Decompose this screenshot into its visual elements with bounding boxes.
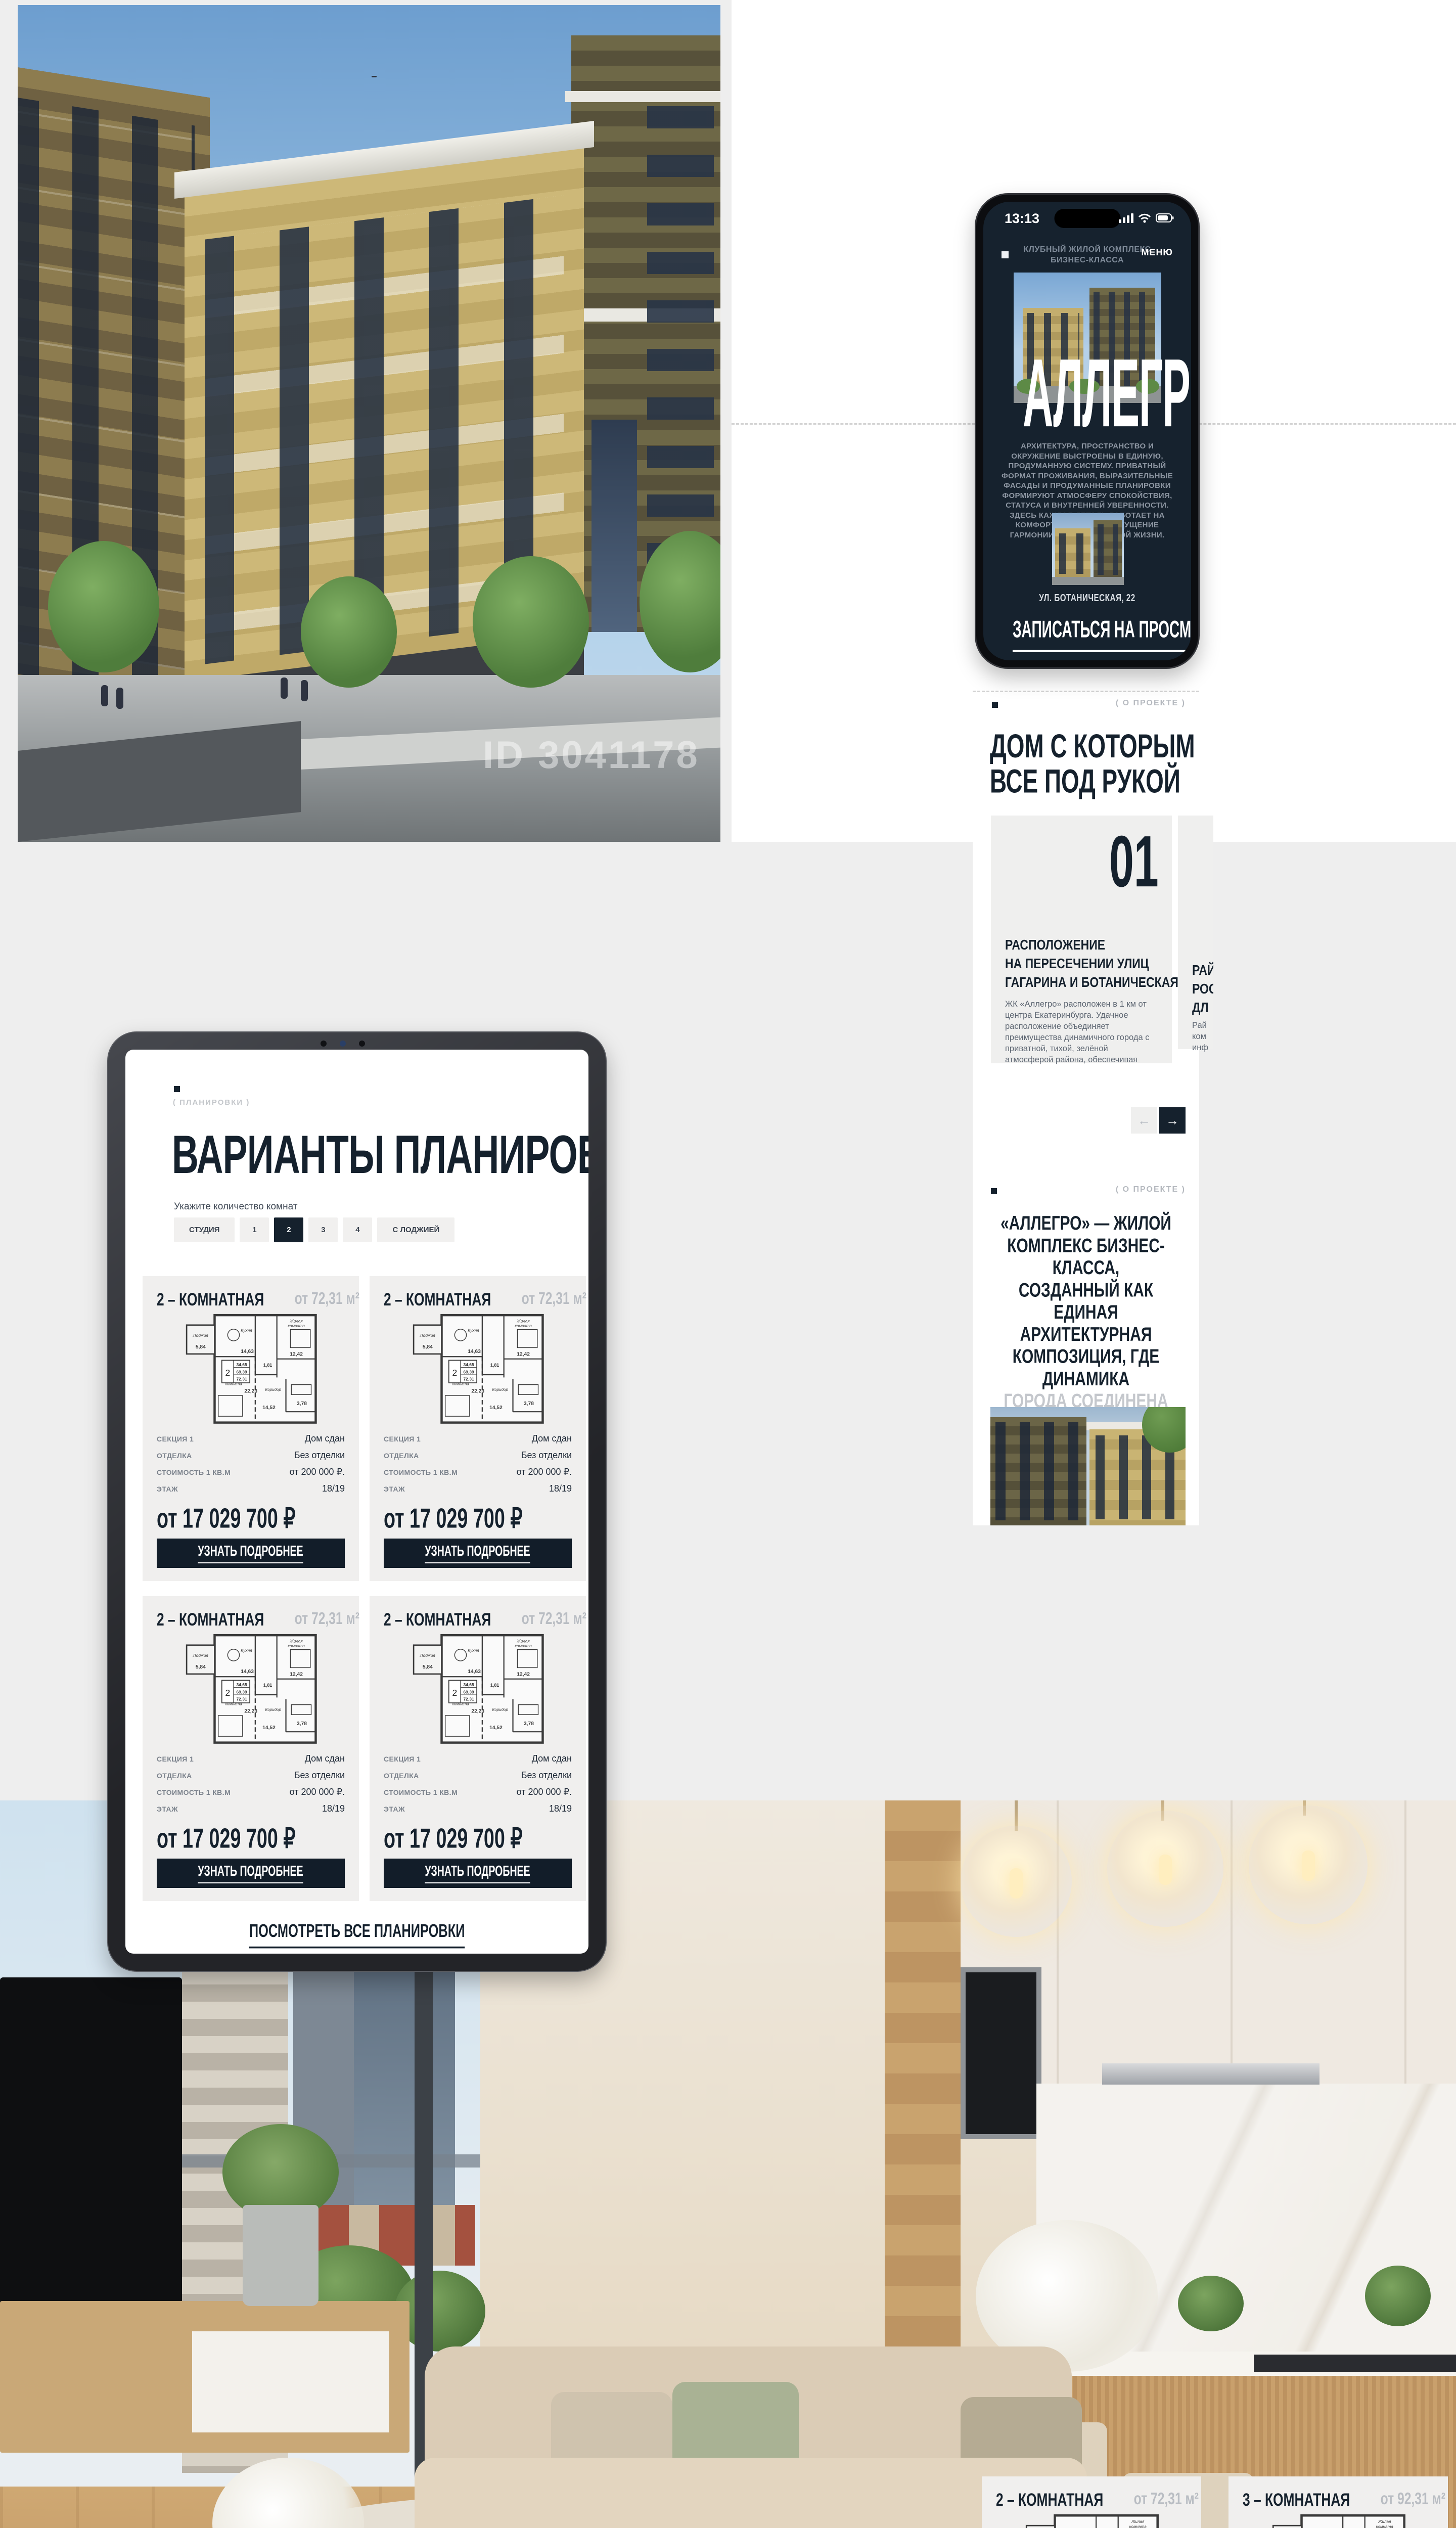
- svg-text:Кухня: Кухня: [468, 1328, 479, 1333]
- svg-text:72,31: 72,31: [237, 1697, 247, 1702]
- dashed-divider: [973, 691, 1199, 692]
- svg-text:комната: комната: [515, 1644, 532, 1648]
- learn-more-button[interactable]: УЗНАТЬ ПОДРОБНЕЕ: [384, 1539, 572, 1568]
- svg-text:комната: комната: [288, 1324, 305, 1328]
- svg-text:12,42: 12,42: [290, 1672, 303, 1677]
- svg-text:14,52: 14,52: [489, 1725, 503, 1731]
- apartment-specs: СЕКЦИЯ 1Дом сданОТДЕЛКАБез отделкиСТОИМО…: [384, 1430, 572, 1497]
- svg-text:5,84: 5,84: [423, 1344, 433, 1350]
- svg-text:22,23: 22,23: [244, 1389, 257, 1394]
- apartment-specs: СЕКЦИЯ 1Дом сданОТДЕЛКАБез отделкиСТОИМО…: [384, 1750, 572, 1817]
- plans-grid: 2 – КОМНАТНАЯ от 72,31 м² Лоджия 5,84 Ку…: [143, 1276, 586, 1901]
- apartment-title: 2 – КОМНАТНАЯ: [996, 2490, 1103, 2510]
- status-icons: [1119, 213, 1174, 223]
- apartment-price: от 17 029 700 ₽: [157, 1502, 311, 1534]
- spec-row: ЭТАЖ18/19: [157, 1480, 345, 1497]
- phone-screen: 13:13 КЛУБНЫЙ ЖИЛОЙ КОМПЛЕКСБИЗНЕС-КЛАСС…: [983, 202, 1191, 660]
- carousel-next-button[interactable]: →: [1159, 1107, 1186, 1134]
- feature-title: РАСПОЛОЖЕНИЕНА ПЕРЕСЕЧЕНИИ УЛИЦГАГАРИНА …: [1005, 936, 1178, 992]
- apartment-specs: СЕКЦИЯ 1Дом сданОТДЕЛКАБез отделкиСТОИМО…: [157, 1430, 345, 1497]
- menu-button[interactable]: МЕНЮ: [1141, 247, 1173, 258]
- apartment-area: от 72,31 м²: [294, 1609, 359, 1629]
- see-all-plans-link[interactable]: ПОСМОТРЕТЬ ВСЕ ПЛАНИРОВКИ: [125, 1920, 588, 1944]
- pedestrian: [101, 685, 108, 706]
- svg-text:14,52: 14,52: [262, 1405, 276, 1411]
- filter-с лоджией[interactable]: С ЛОДЖИЕЙ: [377, 1217, 454, 1242]
- apartment-title: 2 – КОМНАТНАЯ: [384, 1289, 491, 1310]
- plant: [1365, 2266, 1431, 2326]
- spec-row: ОТДЕЛКАБез отделки: [384, 1767, 572, 1784]
- svg-text:3,78: 3,78: [297, 1721, 307, 1727]
- apartment-title: 3 – КОМНАТНАЯ: [1243, 2490, 1350, 2510]
- svg-text:2: 2: [225, 1368, 230, 1378]
- tree: [301, 576, 397, 688]
- svg-text:Лоджия: Лоджия: [193, 1653, 209, 1658]
- floor-plan-image: Лоджия 5,84 Кухня 14,63 Жилая комната 12…: [996, 2508, 1187, 2528]
- features-carousel[interactable]: 01 РАСПОЛОЖЕНИЕНА ПЕРЕСЕЧЕНИИ УЛИЦГАГАРИ…: [973, 816, 1213, 1064]
- manifest-dark-lines: «АЛЛЕГРО» — ЖИЛОЙКОМПЛЕКС БИЗНЕС-КЛАССА,…: [986, 1212, 1186, 1390]
- floor-plan-image: Лоджия 5,84 Кухня 14,63 Жилая комната 12…: [384, 1628, 572, 1749]
- svg-text:Лоджия: Лоджия: [420, 1333, 436, 1338]
- apartment-card: 2 – КОМНАТНАЯ от 72,31 м² Лоджия 5,84 Ку…: [143, 1276, 359, 1581]
- spec-row: СТОИМОСТЬ 1 КВ.Мот 200 000 ₽.: [384, 1784, 572, 1800]
- apartment-card: 3 – КОМНАТНАЯ от 92,31 м² Лоджия 5,84 Ку…: [1228, 2476, 1448, 2528]
- svg-text:22,23: 22,23: [244, 1709, 257, 1714]
- svg-text:Жилая: Жилая: [290, 1639, 303, 1643]
- feature-title: РАЙРОСДЛ: [1192, 961, 1213, 1017]
- svg-text:5,84: 5,84: [196, 1344, 206, 1350]
- feature-card-01: 01 РАСПОЛОЖЕНИЕНА ПЕРЕСЕЧЕНИИ УЛИЦГАГАРИ…: [991, 816, 1172, 1063]
- svg-text:1,81: 1,81: [490, 1683, 499, 1688]
- svg-text:69,39: 69,39: [237, 1689, 247, 1694]
- plant-pot: [243, 2205, 318, 2306]
- spec-row: СТОИМОСТЬ 1 КВ.Мот 200 000 ₽.: [157, 1784, 345, 1800]
- range-hood: [1102, 2063, 1319, 2085]
- pedestrian: [301, 680, 308, 701]
- spec-row: ОТДЕЛКАБез отделки: [384, 1447, 572, 1464]
- svg-text:14,63: 14,63: [241, 1349, 254, 1355]
- logo-square: [1002, 251, 1009, 258]
- building-render-photo: ID 3041178: [18, 5, 720, 842]
- tablet-mockup: ( ПЛАНИРОВКИ ) ВАРИАНТЫ ПЛАНИРОВОК Укажи…: [107, 1031, 607, 1972]
- svg-text:Жилая: Жилая: [1378, 2519, 1391, 2524]
- about-heading: ДОМ С КОТОРЫМВСЕ ПОД РУКОЙ: [990, 728, 1195, 798]
- apartment-area: от 72,31 м²: [521, 1289, 586, 1308]
- svg-text:22,23: 22,23: [471, 1389, 484, 1394]
- phone-mockup: 13:13 КЛУБНЫЙ ЖИЛОЙ КОМПЛЕКСБИЗНЕС-КЛАСС…: [975, 193, 1200, 669]
- svg-text:2: 2: [225, 1688, 230, 1698]
- apartment-area: от 92,31 м²: [1380, 2490, 1445, 2509]
- svg-text:5,84: 5,84: [423, 1664, 433, 1670]
- svg-text:Кухня: Кухня: [468, 1648, 479, 1653]
- svg-text:Лоджия: Лоджия: [420, 1653, 436, 1658]
- address-label: УЛ. БОТАНИЧЕСКАЯ, 22: [994, 592, 1181, 604]
- facade-photo: [990, 1407, 1186, 1525]
- apartment-title: 2 – КОМНАТНАЯ: [157, 1609, 264, 1630]
- section-label-about2: ( О ПРОЕКТЕ ): [973, 1185, 1186, 1194]
- svg-text:2: 2: [452, 1688, 457, 1698]
- svg-text:1,81: 1,81: [263, 1363, 272, 1368]
- learn-more-button[interactable]: УЗНАТЬ ПОДРОБНЕЕ: [157, 1539, 345, 1568]
- learn-more-button[interactable]: УЗНАТЬ ПОДРОБНЕЕ: [384, 1859, 572, 1888]
- feature-body: ЖК «Аллегро» расположен в 1 км от центра…: [1005, 999, 1158, 1064]
- floor-plan-image: Лоджия 5,84 Кухня 14,63 Жилая комната 12…: [1243, 2508, 1434, 2528]
- apartment-card: 2 – КОМНАТНАЯ от 72,31 м² Лоджия 5,84 Ку…: [143, 1596, 359, 1901]
- svg-text:14,63: 14,63: [241, 1669, 254, 1675]
- apartment-area: от 72,31 м²: [1133, 2490, 1198, 2509]
- tv-console: [0, 2301, 409, 2453]
- svg-text:Жилая: Жилая: [517, 1639, 530, 1643]
- pendant-lamp: [1249, 1805, 1368, 1924]
- svg-text:Жилая: Жилая: [1131, 2519, 1145, 2524]
- svg-text:Коридор: Коридор: [265, 1707, 282, 1712]
- spec-row: СЕКЦИЯ 1Дом сдан: [157, 1750, 345, 1767]
- apartment-price: от 17 029 700 ₽: [157, 1822, 311, 1855]
- svg-text:69,39: 69,39: [464, 1369, 474, 1374]
- svg-text:3,78: 3,78: [524, 1401, 534, 1407]
- spec-row: ОТДЕЛКАБез отделки: [157, 1447, 345, 1464]
- svg-text:5,84: 5,84: [196, 1664, 206, 1670]
- spec-row: СЕКЦИЯ 1Дом сдан: [384, 1430, 572, 1447]
- spec-row: ОТДЕЛКАБез отделки: [157, 1767, 345, 1784]
- spec-row: СТОИМОСТЬ 1 КВ.Мот 200 000 ₽.: [384, 1464, 572, 1480]
- filter-3[interactable]: 3: [308, 1217, 338, 1242]
- svg-text:12,42: 12,42: [517, 1351, 530, 1357]
- svg-text:Жилая: Жилая: [517, 1319, 530, 1323]
- svg-text:Коридор: Коридор: [492, 1707, 509, 1712]
- spec-row: ЭТАЖ18/19: [384, 1800, 572, 1817]
- book-viewing-button[interactable]: ЗАПИСАТЬСЯ НА ПРОСМОТР: [983, 615, 1191, 643]
- svg-text:Лоджия: Лоджия: [193, 1333, 209, 1338]
- svg-text:3,78: 3,78: [524, 1721, 534, 1727]
- svg-text:14,63: 14,63: [468, 1349, 481, 1355]
- spec-row: СЕКЦИЯ 1Дом сдан: [157, 1430, 345, 1447]
- svg-text:комната: комната: [1376, 2524, 1394, 2528]
- svg-text:34,65: 34,65: [237, 1682, 247, 1687]
- svg-text:14,52: 14,52: [489, 1405, 503, 1411]
- apartment-price: от 17 029 700 ₽: [384, 1502, 538, 1534]
- stock-watermark: ID 3041178: [483, 733, 700, 777]
- project-title: АЛЛЕГРО: [1023, 337, 1152, 448]
- spec-row: СТОИМОСТЬ 1 КВ.Мот 200 000 ₽.: [157, 1464, 345, 1480]
- pedestrian: [116, 688, 123, 709]
- signal-icon: [1119, 213, 1133, 223]
- bottom-plan-cards: 2 – КОМНАТНАЯ от 72,31 м² Лоджия 5,84 Ку…: [982, 2476, 1448, 2528]
- svg-text:34,65: 34,65: [464, 1362, 474, 1367]
- filter-1[interactable]: 1: [240, 1217, 269, 1242]
- floor-plan-image: Лоджия 5,84 Кухня 14,63 Жилая комната 12…: [157, 1307, 345, 1429]
- floor-plan-image: Лоджия 5,84 Кухня 14,63 Жилая комната 12…: [384, 1307, 572, 1429]
- apartment-title: 2 – КОМНАТНАЯ: [157, 1289, 264, 1310]
- svg-text:1,81: 1,81: [263, 1683, 272, 1688]
- svg-text:14,63: 14,63: [468, 1669, 481, 1675]
- feature-card-02-partial: РАЙРОСДЛ Райкоминф: [1178, 816, 1213, 1049]
- filter-caption: Укажите количество комнат: [174, 1201, 297, 1212]
- carousel-prev-button[interactable]: ←: [1131, 1107, 1157, 1134]
- apartment-area: от 72,31 м²: [521, 1609, 586, 1629]
- tv: [0, 1977, 182, 2311]
- svg-text:3,78: 3,78: [297, 1401, 307, 1407]
- apartment-title: 2 – КОМНАТНАЯ: [384, 1609, 491, 1630]
- section-square-marker: [174, 1086, 180, 1092]
- svg-text:34,65: 34,65: [237, 1362, 247, 1367]
- dynamic-island: [1054, 209, 1120, 228]
- svg-text:комната: комната: [1129, 2524, 1147, 2528]
- plant: [1178, 2276, 1244, 2331]
- tree: [473, 556, 589, 688]
- room-filter-group: СТУДИЯ1234С ЛОДЖИЕЙ: [174, 1217, 454, 1242]
- wifi-icon: [1138, 213, 1151, 223]
- svg-text:комната: комната: [515, 1324, 532, 1328]
- filter-2[interactable]: 2: [274, 1217, 303, 1242]
- svg-text:72,31: 72,31: [464, 1377, 474, 1382]
- tablet-screen: ( ПЛАНИРОВКИ ) ВАРИАНТЫ ПЛАНИРОВОК Укажи…: [125, 1050, 588, 1954]
- svg-text:1,81: 1,81: [490, 1363, 499, 1368]
- apartment-specs: СЕКЦИЯ 1Дом сданОТДЕЛКАБез отделкиСТОИМО…: [157, 1750, 345, 1817]
- svg-text:Кухня: Кухня: [241, 1648, 252, 1653]
- section-label-about: ( О ПРОЕКТЕ ): [973, 699, 1186, 708]
- spec-row: ЭТАЖ18/19: [384, 1480, 572, 1497]
- apartment-price: от 17 029 700 ₽: [384, 1822, 538, 1855]
- svg-text:Кухня: Кухня: [241, 1328, 252, 1333]
- svg-text:2: 2: [452, 1368, 457, 1378]
- plans-heading: ВАРИАНТЫ ПЛАНИРОВОК: [172, 1123, 588, 1186]
- design-showcase-page: ID 3041178 13:13 КЛУБНЫЙ ЖИЛОЙ КО: [0, 0, 1456, 2528]
- bird: [372, 76, 377, 77]
- pendant-lamp: [1107, 1811, 1223, 1927]
- floor-plan-image: Лоджия 5,84 Кухня 14,63 Жилая комната 12…: [157, 1628, 345, 1749]
- filter-студия[interactable]: СТУДИЯ: [174, 1217, 235, 1242]
- cooktop: [1254, 2355, 1456, 2372]
- feature-body: Райкоминф: [1192, 1020, 1213, 1053]
- apartment-card: 2 – КОМНАТНАЯ от 72,31 м² Лоджия 5,84 Ку…: [370, 1276, 586, 1581]
- tree: [48, 541, 159, 672]
- svg-text:12,42: 12,42: [517, 1672, 530, 1677]
- filter-4[interactable]: 4: [343, 1217, 372, 1242]
- svg-text:Коридор: Коридор: [265, 1387, 282, 1392]
- svg-text:34,65: 34,65: [464, 1682, 474, 1687]
- svg-text:22,23: 22,23: [471, 1709, 484, 1714]
- svg-text:72,31: 72,31: [237, 1377, 247, 1382]
- pedestrian: [281, 678, 288, 699]
- phone-site-header: КЛУБНЫЙ ЖИЛОЙ КОМПЛЕКСБИЗНЕС-КЛАССА: [1014, 244, 1161, 265]
- oven: [961, 1967, 1041, 2139]
- section-label-plans: ( ПЛАНИРОВКИ ): [173, 1098, 250, 1107]
- svg-text:Коридор: Коридор: [492, 1387, 509, 1392]
- tablet-camera: [321, 1041, 365, 1047]
- svg-text:69,39: 69,39: [464, 1689, 474, 1694]
- svg-text:Жилая: Жилая: [290, 1319, 303, 1323]
- apartment-card: 2 – КОМНАТНАЯ от 72,31 м² Лоджия 5,84 Ку…: [370, 1596, 586, 1901]
- battery-icon: [1156, 213, 1174, 222]
- svg-text:69,39: 69,39: [237, 1369, 247, 1374]
- learn-more-button[interactable]: УЗНАТЬ ПОДРОБНЕЕ: [157, 1859, 345, 1888]
- svg-text:12,42: 12,42: [290, 1351, 303, 1357]
- apartment-card: 2 – КОМНАТНАЯ от 72,31 м² Лоджия 5,84 Ку…: [982, 2476, 1201, 2528]
- spec-row: ЭТАЖ18/19: [157, 1800, 345, 1817]
- kitchen-wood-column: [885, 1800, 961, 2377]
- svg-text:комната: комната: [288, 1644, 305, 1648]
- phone-secondary-image: [1052, 513, 1124, 585]
- feature-number: 01: [1109, 820, 1159, 903]
- status-time: 13:13: [1005, 211, 1039, 227]
- svg-text:72,31: 72,31: [464, 1697, 474, 1702]
- svg-text:14,52: 14,52: [262, 1725, 276, 1731]
- spec-row: СЕКЦИЯ 1Дом сдан: [384, 1750, 572, 1767]
- pendant-lamp: [961, 1826, 1072, 1937]
- apartment-area: от 72,31 м²: [294, 1289, 359, 1308]
